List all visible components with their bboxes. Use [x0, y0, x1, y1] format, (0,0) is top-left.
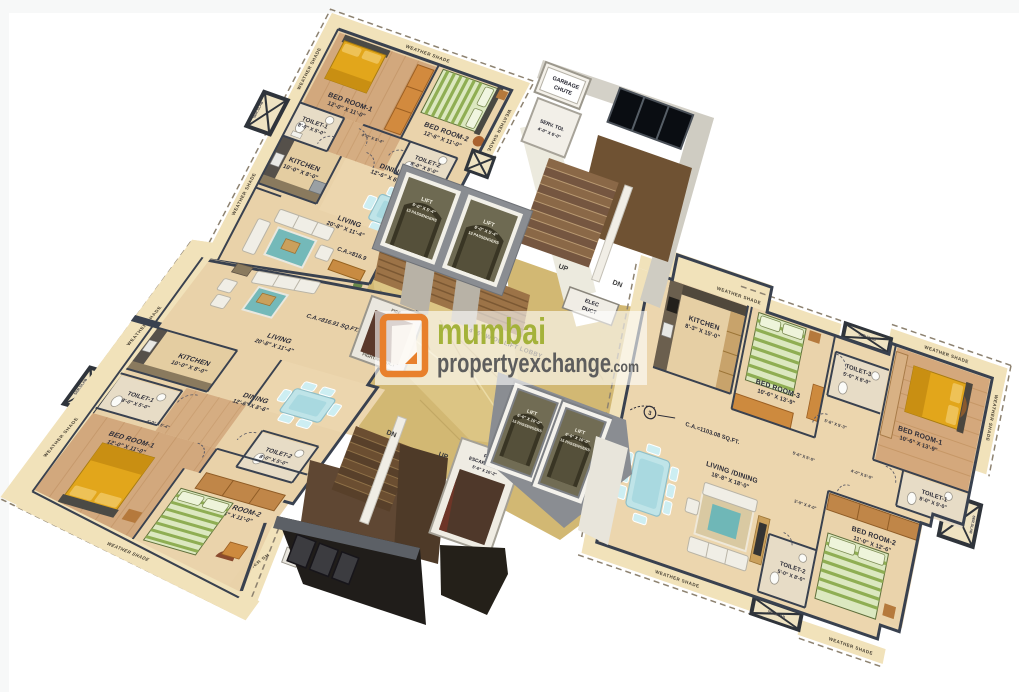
svg-text:.com: .com	[610, 359, 639, 376]
svg-text:mumbai: mumbai	[437, 311, 546, 352]
svg-text:propertyexchange: propertyexchange	[437, 348, 611, 378]
